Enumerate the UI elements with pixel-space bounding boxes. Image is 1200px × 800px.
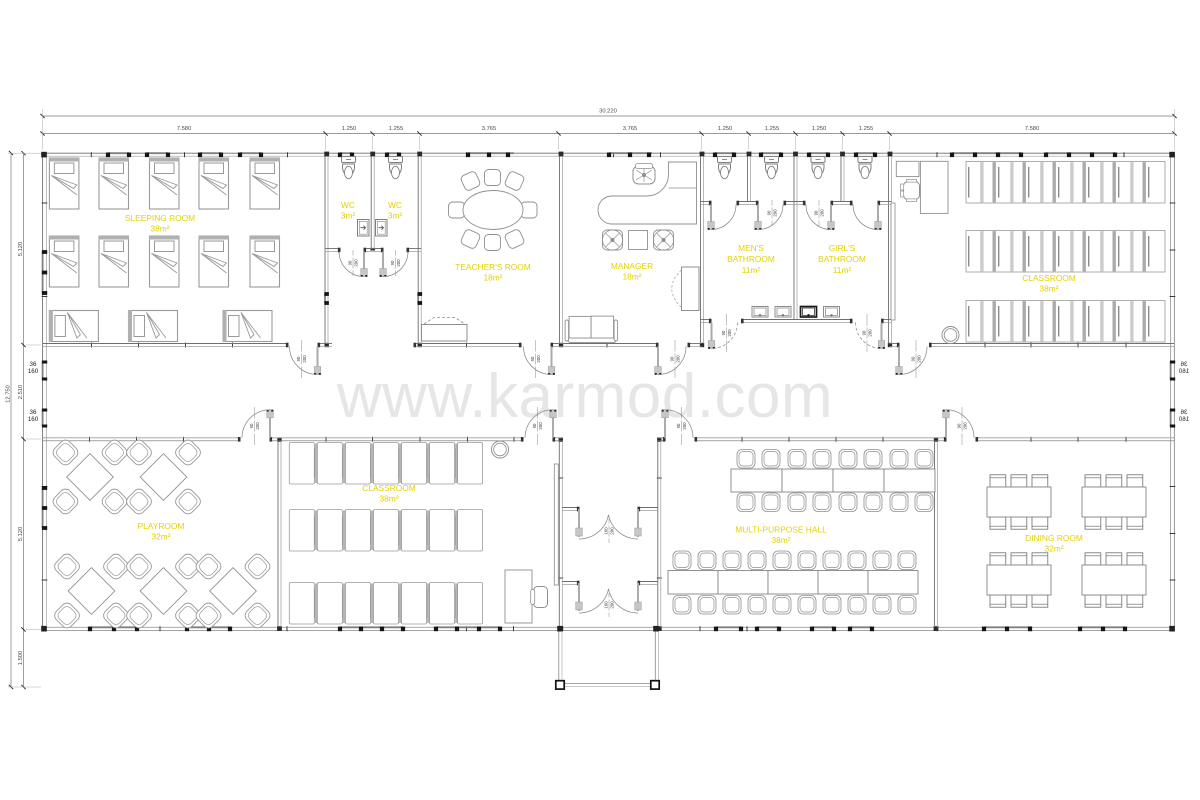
svg-text:1.255: 1.255 — [765, 126, 780, 132]
svg-text:200: 200 — [917, 355, 922, 363]
svg-text:7.580: 7.580 — [177, 126, 192, 132]
svg-text:200: 200 — [255, 422, 260, 430]
svg-text:90: 90 — [530, 356, 535, 361]
svg-text:PLAYROOM: PLAYROOM — [138, 521, 185, 531]
svg-text:160: 160 — [28, 416, 39, 423]
svg-text:90: 90 — [532, 423, 537, 428]
svg-text:90: 90 — [910, 356, 915, 361]
svg-text:90: 90 — [676, 423, 681, 428]
svg-text:90: 90 — [390, 260, 395, 265]
svg-text:BATHROOM: BATHROOM — [818, 254, 866, 264]
svg-text:200: 200 — [676, 355, 681, 363]
svg-text:90: 90 — [721, 330, 726, 335]
svg-text:1.250: 1.250 — [718, 126, 733, 132]
svg-text:WC: WC — [388, 200, 402, 210]
svg-text:GIRL'S: GIRL'S — [829, 243, 856, 253]
svg-text:3.765: 3.765 — [623, 126, 638, 132]
svg-text:BATHROOM: BATHROOM — [727, 254, 775, 264]
svg-text:160: 160 — [28, 368, 39, 375]
svg-text:200: 200 — [354, 259, 359, 267]
svg-text:160: 160 — [603, 601, 608, 609]
svg-text:1.250: 1.250 — [812, 126, 827, 132]
svg-text:MEN'S: MEN'S — [738, 243, 764, 253]
svg-text:1.250: 1.250 — [342, 126, 357, 132]
svg-text:90: 90 — [249, 423, 254, 428]
svg-text:WC: WC — [341, 200, 355, 210]
svg-text:30.220: 30.220 — [599, 109, 617, 115]
svg-text:1.255: 1.255 — [389, 126, 404, 132]
svg-text:200: 200 — [820, 209, 825, 217]
svg-text:38m²: 38m² — [1039, 284, 1058, 294]
svg-text:90: 90 — [766, 210, 771, 215]
svg-text:200: 200 — [302, 355, 307, 363]
svg-text:www.karmod.com: www.karmod.com — [336, 362, 833, 431]
svg-text:32m²: 32m² — [1044, 544, 1063, 554]
svg-text:18m²: 18m² — [622, 272, 641, 282]
svg-text:38m²: 38m² — [150, 224, 169, 234]
svg-text:200: 200 — [536, 355, 541, 363]
svg-text:90: 90 — [669, 356, 674, 361]
svg-text:3.765: 3.765 — [482, 126, 497, 132]
svg-text:160: 160 — [1178, 416, 1189, 423]
svg-text:12.750: 12.750 — [6, 385, 12, 403]
svg-text:11m²: 11m² — [833, 265, 852, 275]
svg-text:38m²: 38m² — [379, 494, 398, 504]
svg-text:90: 90 — [956, 423, 961, 428]
svg-text:1.255: 1.255 — [859, 126, 874, 132]
svg-text:90: 90 — [861, 330, 866, 335]
svg-text:DINING ROOM: DINING ROOM — [1025, 533, 1083, 543]
svg-text:90: 90 — [813, 210, 818, 215]
svg-text:200: 200 — [610, 527, 615, 535]
svg-text:2.510: 2.510 — [18, 385, 24, 400]
svg-text:200: 200 — [868, 329, 873, 337]
svg-text:200: 200 — [610, 601, 615, 609]
svg-text:200: 200 — [682, 422, 687, 430]
svg-text:3m²: 3m² — [388, 211, 403, 221]
svg-text:160: 160 — [1178, 368, 1189, 375]
svg-text:200: 200 — [538, 422, 543, 430]
svg-text:5.120: 5.120 — [18, 527, 24, 542]
svg-text:TEACHER'S ROOM: TEACHER'S ROOM — [455, 262, 531, 272]
svg-text:11m²: 11m² — [742, 265, 761, 275]
svg-text:7.580: 7.580 — [1025, 126, 1040, 132]
svg-text:200: 200 — [727, 329, 732, 337]
svg-text:200: 200 — [773, 209, 778, 217]
svg-text:200: 200 — [396, 259, 401, 267]
svg-text:90: 90 — [296, 356, 301, 361]
svg-text:3m²: 3m² — [341, 211, 356, 221]
svg-text:18m²: 18m² — [483, 273, 502, 283]
svg-text:SLEEPING ROOM: SLEEPING ROOM — [125, 213, 195, 223]
svg-text:1.500: 1.500 — [18, 651, 24, 666]
svg-text:MANAGER: MANAGER — [611, 261, 653, 271]
svg-text:38m²: 38m² — [771, 535, 790, 545]
svg-text:5.120: 5.120 — [18, 242, 24, 257]
svg-text:160: 160 — [603, 527, 608, 535]
svg-text:CLASSROOM: CLASSROOM — [362, 483, 416, 493]
svg-text:32m²: 32m² — [151, 532, 170, 542]
svg-text:CLASSROOM: CLASSROOM — [1022, 273, 1076, 283]
svg-text:MULTI-PURPOSE HALL: MULTI-PURPOSE HALL — [735, 525, 827, 535]
svg-text:90: 90 — [347, 260, 352, 265]
svg-text:200: 200 — [963, 422, 968, 430]
